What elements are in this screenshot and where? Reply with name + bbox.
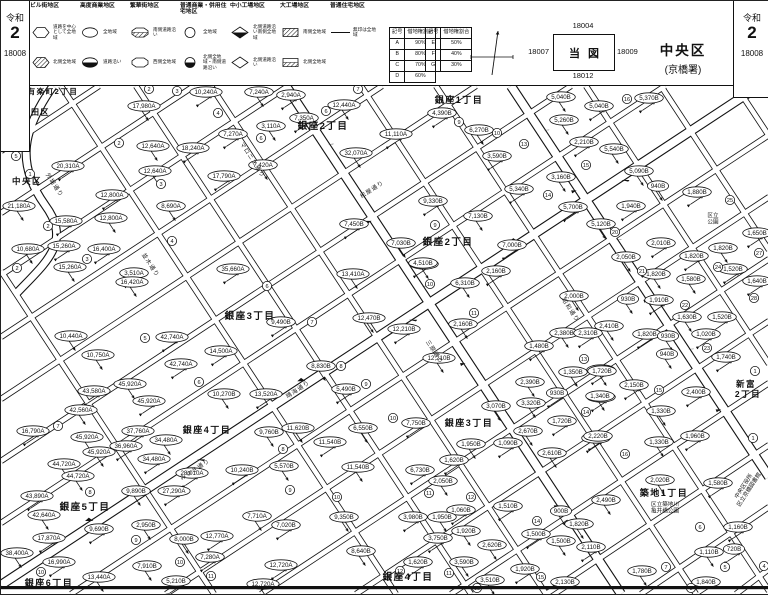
street-network xyxy=(1,86,768,594)
area-label: 銀座2丁目 xyxy=(298,120,349,132)
block-number: 10 xyxy=(494,131,500,137)
zone-symbol-icon xyxy=(180,56,202,69)
land-value: 1,110B xyxy=(699,549,718,556)
block-number: 4 xyxy=(216,111,219,117)
land-value: 2,130B xyxy=(555,579,575,586)
land-value: 1,640B xyxy=(747,278,767,285)
land-value: 7,270A xyxy=(223,131,243,138)
land-value: 1,340B xyxy=(590,393,610,400)
land-value: 1,500B xyxy=(551,538,571,545)
land-value: 1,500B xyxy=(526,531,546,538)
legend-group-title: 高度商業地区 xyxy=(80,3,130,17)
land-value: 1,820B xyxy=(646,271,666,278)
area-label: 中央区 xyxy=(12,176,42,186)
area-label: 銀座4丁目 xyxy=(383,571,434,583)
facility-label: 中央区役所区立京橋図書館 xyxy=(729,467,763,508)
block-number: 10 xyxy=(177,560,183,566)
land-value: 42,560A xyxy=(69,407,93,414)
land-value: 7,130B xyxy=(468,213,488,220)
land-value: 2,940A xyxy=(281,92,301,99)
land-value: 5,540B xyxy=(604,146,624,153)
land-value: 1,920B xyxy=(515,566,535,573)
legend-group-title: ビル街地区 xyxy=(30,3,80,17)
sheet-number: 18008 xyxy=(1,49,29,58)
block-number: 16 xyxy=(622,452,628,458)
block-number: 22 xyxy=(682,303,688,309)
land-value: 2,220B xyxy=(588,433,608,440)
land-value: 1,620B xyxy=(444,457,464,464)
block-number: 7 xyxy=(310,320,313,326)
land-value: 1,720B xyxy=(552,418,572,425)
land-value: 9,330B xyxy=(423,198,443,205)
block-number: 6 xyxy=(698,525,701,531)
land-value: 10,440A xyxy=(59,333,83,340)
land-value: 12,770A xyxy=(205,533,229,540)
block-number: 2 xyxy=(46,224,49,230)
legend-row: 北側全地域・南側道路沿い xyxy=(180,47,230,77)
block-number: 9 xyxy=(134,538,137,544)
land-value: 1,090B xyxy=(498,440,518,447)
legend-row: 北側道路沿い xyxy=(230,47,280,77)
zone-symbol-icon xyxy=(280,26,302,39)
land-value: 43,580A xyxy=(82,388,106,395)
neighbor-sheet-top: 18004 xyxy=(553,21,613,30)
col-ratio: 借地権割合 xyxy=(441,28,472,39)
block-number: 9 xyxy=(433,223,436,229)
land-value: 1,950B xyxy=(432,514,452,521)
rosenka-map-sheet: 17,980A10,240A7,240A2,940A3,110A7,270A12… xyxy=(0,0,768,595)
land-value: 1,820B xyxy=(713,245,733,252)
area-label: 銀座1丁目 xyxy=(435,94,484,105)
land-value: 2,400B xyxy=(686,389,706,396)
land-value: 1,720B xyxy=(592,368,612,375)
legend-row-label: 南側全地域 xyxy=(303,29,326,34)
block-number: 14 xyxy=(583,410,589,416)
land-value: 8,690A xyxy=(161,203,181,210)
block-number: 10 xyxy=(390,416,396,422)
land-value: 42,740A xyxy=(160,334,184,341)
land-value: 5,700B xyxy=(563,204,583,211)
block-number: 24 xyxy=(715,265,721,271)
land-value: 940B xyxy=(660,351,674,358)
zone-symbol-icon xyxy=(130,56,152,69)
land-value: 3,510A xyxy=(124,270,144,277)
neighbor-sheet-bottom: 18012 xyxy=(553,71,613,80)
land-value: 2,620B xyxy=(482,542,502,549)
area-label: 新富 xyxy=(736,379,756,389)
land-value: 42,740A xyxy=(169,361,193,368)
block-number: 2 xyxy=(147,87,150,93)
table-row: G30% xyxy=(426,61,472,72)
block-number: 11 xyxy=(446,571,452,577)
land-value: 1,630B xyxy=(677,314,697,321)
land-value: 6,310B xyxy=(455,280,475,287)
land-value: 7,910B xyxy=(137,563,157,570)
era-year: 2 xyxy=(734,24,768,43)
land-value: 7,710A xyxy=(247,513,267,520)
block-number: 21 xyxy=(639,269,645,275)
land-value: 3,070B xyxy=(486,403,506,410)
area-label: 築地1丁目 xyxy=(639,487,689,498)
header-band: ビル街地区道路を中心として全地域北側全地域高度商業地区全地域道路沿い繁華街地区南… xyxy=(1,1,768,86)
block-number: 4 xyxy=(170,239,173,245)
block-number: 10 xyxy=(38,570,44,576)
ward-name: 中央区 xyxy=(637,39,729,59)
area-label: 銀座2丁目 xyxy=(423,236,474,248)
legend-group: 大工場地区南側全地域北側全地域 xyxy=(280,3,330,83)
legend-row-label: 無印は全地域 xyxy=(353,27,380,38)
land-value: 12,640A xyxy=(143,168,167,175)
land-value: 18,240A xyxy=(181,145,205,152)
legend-group: 普通住宅地区無印は全地域 xyxy=(330,3,380,83)
land-value: 35,660A xyxy=(221,266,245,273)
street-name-label: 松屋通り xyxy=(358,179,385,201)
land-value: 12,800A xyxy=(99,215,123,222)
land-value: 5,340B xyxy=(509,186,529,193)
land-value: 1,820B xyxy=(684,253,704,260)
land-value: 17,980A xyxy=(132,103,156,110)
land-value: 6,730B xyxy=(410,467,430,474)
block-number: 5 xyxy=(14,154,17,160)
land-value: 43,890A xyxy=(25,493,49,500)
land-value: 10,240B xyxy=(230,467,253,474)
legend-row-label: 全地域 xyxy=(103,29,117,34)
land-value: 2,110B xyxy=(581,544,600,551)
land-value: 930B xyxy=(621,296,635,303)
key-map-label: 当図 xyxy=(561,45,607,61)
land-value: 45,920A xyxy=(87,449,111,456)
land-value: 1,330B xyxy=(649,439,669,446)
land-value: 1,820B xyxy=(569,521,589,528)
land-value: 8,830B xyxy=(311,363,331,370)
legend-group: 高度商業地区全地域道路沿い xyxy=(80,3,130,83)
land-value: 5,210B xyxy=(166,578,186,585)
block-number: 23 xyxy=(704,346,710,352)
land-value: 2,050B xyxy=(616,254,636,261)
land-value: 1,780B xyxy=(632,568,652,575)
legend-row: 道路を中心として全地域 xyxy=(30,17,80,47)
land-value: 5,490B xyxy=(336,386,356,393)
land-value: 1,480B xyxy=(529,343,549,350)
land-value: 13,520A xyxy=(254,391,278,398)
legend-group: 中小工場地区北側道路沿い南側全地域北側道路沿い xyxy=(230,3,280,83)
land-value: 3,510B xyxy=(480,577,500,584)
legend-row-label: 全地域 xyxy=(203,29,217,34)
land-value: 1,510B xyxy=(498,503,518,510)
zone-symbol-icon xyxy=(230,56,252,69)
land-value: 4,390B xyxy=(432,110,452,117)
right-margin-sheet-id: 令和 2 18008 xyxy=(733,1,768,98)
land-value: 2,160B xyxy=(453,321,473,328)
block-number: 12 xyxy=(468,495,474,501)
land-value: 5,040B xyxy=(551,94,571,101)
sheet-title: 中央区 (京橋署) xyxy=(637,39,729,76)
area-label: 2丁目 xyxy=(735,389,761,399)
land-value: 1,620B xyxy=(408,559,428,566)
sheet-number: 18008 xyxy=(734,49,768,58)
legend-group-title: 中小工場地区 xyxy=(230,3,280,17)
area-label: 銀座3丁目 xyxy=(445,417,494,428)
area-label: 銀座4丁目 xyxy=(183,424,232,435)
legend-row-label: 北側全地域 xyxy=(53,59,76,64)
land-value: 2,150B xyxy=(624,382,644,389)
land-value: 1,960B xyxy=(685,433,705,440)
legend-row-label: 南側道路沿い xyxy=(153,27,180,38)
land-value: 8,000B xyxy=(174,536,194,543)
land-value: 1,520B xyxy=(712,314,732,321)
district-legend: ビル街地区道路を中心として全地域北側全地域高度商業地区全地域道路沿い繁華街地区南… xyxy=(30,3,382,83)
land-value: 11,620B xyxy=(287,425,310,432)
land-value: 6,270B xyxy=(469,127,489,134)
land-value: 1,330B xyxy=(651,408,671,415)
table-row: E50% xyxy=(426,39,472,50)
land-value: 5,570B xyxy=(274,463,294,470)
block-number: 10 xyxy=(334,495,340,501)
land-value: 10,240A xyxy=(194,89,218,96)
land-value: 7,450B xyxy=(344,221,364,228)
land-value: 3,590B xyxy=(487,153,507,160)
table-row: F40% xyxy=(426,50,472,61)
legend-row-label: 北側全地域・南側道路沿い xyxy=(203,54,230,70)
land-value: 1,740B xyxy=(716,354,736,361)
block-number: 5 xyxy=(143,336,146,342)
legend-row-label: 道路沿い xyxy=(103,59,121,64)
land-value: 3,160B xyxy=(551,174,571,181)
land-value: 34,480A xyxy=(142,456,166,463)
block-number: 8 xyxy=(88,490,91,496)
block-number: 7 xyxy=(356,87,359,93)
land-value: 6,550B xyxy=(353,425,373,432)
land-value: 34,480A xyxy=(154,437,178,444)
land-value: 2,210B xyxy=(574,139,594,146)
legend-group-title: 大工場地区 xyxy=(280,3,330,17)
block-number: 6 xyxy=(265,284,268,290)
legend-row: 無印は全地域 xyxy=(330,17,380,47)
land-value: 1,520B xyxy=(723,266,743,273)
legend-row: 道路沿い xyxy=(80,47,130,77)
block-number: 15 xyxy=(656,388,662,394)
land-value: 1,650B xyxy=(747,230,767,237)
zone-symbol-icon xyxy=(130,26,152,39)
land-value: 9,760B xyxy=(259,429,279,436)
land-value: 7,280A xyxy=(200,554,220,561)
land-value: 1,020B xyxy=(696,331,716,338)
block-number: 2 xyxy=(117,141,120,147)
land-value: 1,950B xyxy=(461,441,481,448)
facility-label: 区立築地川亀井橋公園 xyxy=(651,500,679,514)
legend-group-title: 繁華街地区 xyxy=(130,3,180,17)
land-value: 13,440A xyxy=(87,574,111,581)
land-value: 9,890B xyxy=(126,488,146,495)
land-value: 5,040B xyxy=(589,103,609,110)
block-number: 7 xyxy=(56,424,59,430)
block-number: 3 xyxy=(159,182,162,188)
land-value: 17,870A xyxy=(37,535,61,542)
land-value: 7,020B xyxy=(276,522,296,529)
land-value: 8,640B xyxy=(351,548,371,555)
land-value: 930B xyxy=(661,333,675,340)
street xyxy=(436,86,768,591)
land-value: 1,920B xyxy=(456,528,476,535)
block-number: 9 xyxy=(288,488,291,494)
land-value: 1,840B xyxy=(696,579,716,586)
land-value: 9,690B xyxy=(89,526,109,533)
zone-symbol-icon xyxy=(280,56,302,69)
zone-symbol-icon xyxy=(80,56,102,69)
area-label: 有楽町2丁目 xyxy=(28,86,79,96)
tax-office-name: (京橋署) xyxy=(637,61,729,76)
left-margin-sheet-id: 令和 2 18008 xyxy=(1,1,30,152)
land-value: 15,580A xyxy=(54,218,78,225)
legend-row-label: 北側道路沿い南側全地域 xyxy=(253,24,280,40)
land-value: 5,260B xyxy=(554,117,574,124)
land-value: 11,540B xyxy=(347,464,370,471)
zone-symbol-icon xyxy=(80,26,102,39)
land-value: 16,990A xyxy=(47,559,71,566)
land-value: 930B xyxy=(550,390,564,397)
land-value: 42,640A xyxy=(32,512,56,519)
area-label: 銀座5丁目 xyxy=(60,501,111,513)
land-value: 36,960A xyxy=(114,443,138,450)
land-value: 2,410B xyxy=(599,323,619,330)
land-value: 1,820B xyxy=(637,331,657,338)
land-value: 1,580B xyxy=(681,276,701,283)
legend-group: 繁華街地区南側道路沿い西側全地域 xyxy=(130,3,180,83)
land-value: 9,350B xyxy=(334,514,354,521)
land-value: 2,610B xyxy=(542,450,562,457)
land-value: 38,400A xyxy=(5,550,29,557)
land-value: 3,110A xyxy=(261,123,281,130)
land-value: 44,720A xyxy=(52,461,76,468)
land-value: 2,050B xyxy=(433,478,453,485)
legend-row: 南側道路沿い xyxy=(130,17,180,47)
land-value: 3,320B xyxy=(521,400,541,407)
block-number: 20 xyxy=(612,230,618,236)
block-number: 6 xyxy=(324,109,327,115)
land-value: 12,470B xyxy=(357,315,380,322)
land-value: 2,670B xyxy=(518,428,538,435)
land-value: 1,940B xyxy=(621,203,641,210)
legend-row: 南側全地域 xyxy=(280,17,330,47)
land-value: 16,420A xyxy=(120,279,144,286)
col-symbol: 記号 xyxy=(390,28,405,39)
legend-group: 普通商業・併用住宅地区全地域北側全地域・南側道路沿い xyxy=(180,3,230,83)
land-value: 5,090B xyxy=(629,168,649,175)
legend-row: 全地域 xyxy=(80,17,130,47)
street-name-label: 晴海通り xyxy=(284,379,311,401)
land-value: 11,540B xyxy=(319,439,342,446)
land-value: 11,110A xyxy=(385,131,408,138)
land-value: 12,440A xyxy=(332,102,356,109)
block-number: 10 xyxy=(427,282,433,288)
land-value: 7,030B xyxy=(391,240,411,247)
table-row: D60% xyxy=(390,72,436,83)
land-value: 2,020B xyxy=(650,477,670,484)
land-value: 3,590B xyxy=(454,559,474,566)
block-number: 25 xyxy=(727,198,733,204)
land-value: 7,750B xyxy=(406,420,426,427)
zone-symbol-icon xyxy=(330,26,352,39)
land-value: 2,390B xyxy=(520,379,540,386)
block-number: 3 xyxy=(175,89,178,95)
legend-group: ビル街地区道路を中心として全地域北側全地域 xyxy=(30,3,80,83)
land-value: 10,750A xyxy=(86,352,110,359)
block-number: 14 xyxy=(545,193,551,199)
land-value: 2,160B xyxy=(486,268,506,275)
land-value: 27,290A xyxy=(162,488,186,495)
land-value: 3,980B xyxy=(403,514,423,521)
block-number: 7 xyxy=(664,565,667,571)
block-number: 1 xyxy=(751,436,754,442)
legend-group-title: 普通商業・併用住宅地区 xyxy=(180,3,230,17)
block-number: 5 xyxy=(723,565,726,571)
block-number: 15 xyxy=(538,575,544,581)
land-value: 3,750B xyxy=(428,535,448,542)
block-number: 1 xyxy=(753,369,756,375)
land-value: 1,160B xyxy=(728,524,748,531)
block-number: 11 xyxy=(208,574,214,580)
legend-row-label: 道路を中心として全地域 xyxy=(53,24,80,40)
key-map-box: 当図 xyxy=(553,34,615,71)
legend-row: 全地域 xyxy=(180,17,230,47)
legend-row: 西側全地域 xyxy=(130,47,180,77)
facility-label: 区立公園 xyxy=(707,211,719,225)
block-number: 11 xyxy=(471,311,477,317)
land-value: 15,260A xyxy=(52,243,76,250)
land-value: 4,510B xyxy=(413,260,433,267)
land-value: 1,060B xyxy=(451,507,471,514)
legend-row-label: 北側全地域 xyxy=(303,59,326,64)
land-value: 10,270B xyxy=(212,391,235,398)
land-value: 12,210B xyxy=(392,326,415,333)
land-value: 45,920A xyxy=(118,381,142,388)
legend-row-label: 西側全地域 xyxy=(153,59,176,64)
land-value: 2,000B xyxy=(564,293,584,300)
block-number: 8 xyxy=(339,364,342,370)
land-value: 45,920A xyxy=(137,398,161,405)
zone-symbol-icon xyxy=(30,56,52,69)
block-number: 11 xyxy=(426,491,432,497)
block-number: 13 xyxy=(581,357,587,363)
land-value: 2,010B xyxy=(651,240,671,247)
land-value: 2,950B xyxy=(136,522,156,529)
legend-group-title: 普通住宅地区 xyxy=(330,3,380,17)
land-value: 1,880B xyxy=(687,189,707,196)
land-value: 12,800A xyxy=(100,192,124,199)
map-canvas: 17,980A10,240A7,240A2,940A3,110A7,270A12… xyxy=(1,1,768,594)
zone-symbol-icon xyxy=(230,26,252,39)
leasehold-ratio-table-right: 記号 借地権割合 E50% F40% G30% xyxy=(425,27,472,72)
zone-symbol-icon xyxy=(30,26,52,39)
block-number: 27 xyxy=(756,251,762,257)
legend-row: 北側道路沿い南側全地域 xyxy=(230,17,280,47)
block-number: 14 xyxy=(534,519,540,525)
block-number: 8 xyxy=(281,447,284,453)
legend-row: 北側全地域 xyxy=(30,47,80,77)
block-number: 28 xyxy=(751,296,757,302)
land-value: 14,500A xyxy=(209,348,233,355)
land-value: 2,490B xyxy=(596,497,616,504)
legend-row-label: 北側道路沿い xyxy=(253,57,280,68)
land-value: 32,070A xyxy=(344,150,368,157)
land-value: 45,920A xyxy=(75,434,99,441)
block-number: 4 xyxy=(762,564,765,570)
land-value: 940B xyxy=(651,183,665,190)
block-number: 6 xyxy=(259,136,262,142)
land-value: 10,680A xyxy=(16,246,40,253)
land-value: 1,580B xyxy=(708,480,728,487)
land-value: 7,240A xyxy=(249,89,269,96)
